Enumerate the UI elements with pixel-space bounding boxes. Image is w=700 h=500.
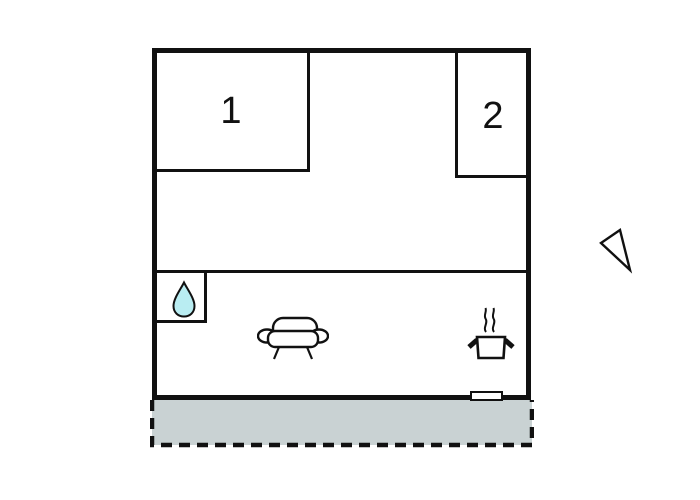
room-1-label: 1 [201,92,261,130]
terrace-area [150,400,534,450]
room-2-label: 2 [463,97,523,135]
water-drop-icon [170,280,198,318]
divider-wall [157,270,527,273]
sofa-icon [257,314,329,362]
floorplan-canvas: 1 2 [0,0,700,500]
cooking-pot-icon [466,306,516,362]
direction-arrow-icon [596,224,638,276]
door-marker [470,391,503,401]
